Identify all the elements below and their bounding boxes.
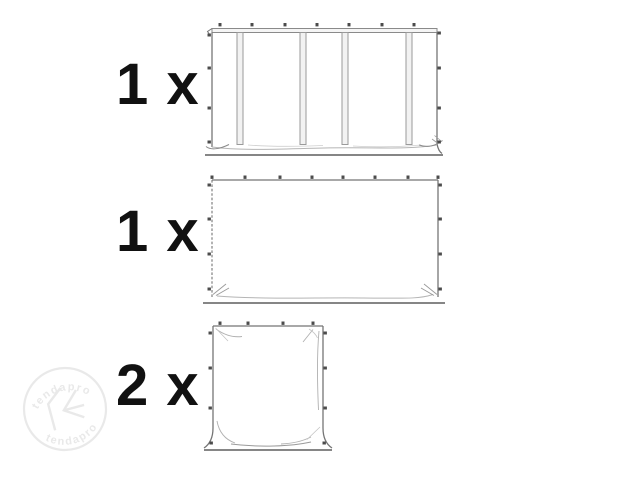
plain-sidewall-illustration (203, 173, 445, 308)
quantity-label-row1: 1 x (116, 56, 200, 114)
product-parts-diagram: 1 x (0, 0, 639, 479)
quantity-label-row2: 1 x (116, 203, 200, 261)
sidewall-windows-outline (205, 29, 443, 156)
end-wall-fastener-dots (209, 322, 327, 445)
quantity-label-row3: 2 x (116, 357, 200, 415)
plain-sidewall-fastener-dots (208, 176, 442, 291)
narrow-end-wall-illustration (201, 318, 335, 458)
end-wall-outline (204, 326, 332, 450)
sidewall-with-windows-illustration (203, 18, 445, 160)
brand-watermark: tendapro tendapro (12, 356, 118, 462)
plain-sidewall-outline (203, 180, 445, 303)
